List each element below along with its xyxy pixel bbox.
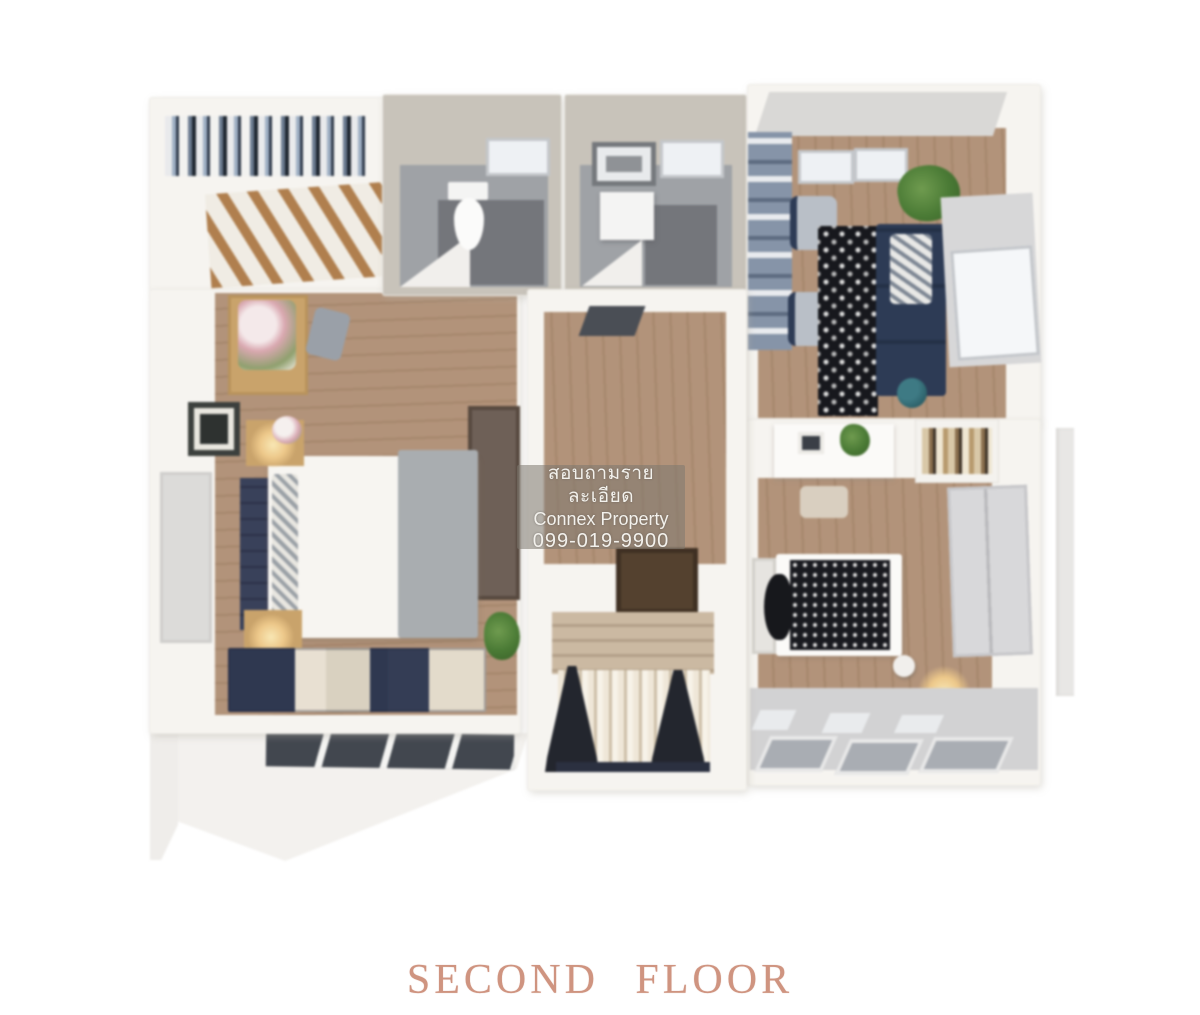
family-room-rug <box>818 226 878 416</box>
stair-bottom-rail <box>556 762 710 772</box>
bedroom2-desk <box>774 424 894 478</box>
floorplan-image: สอบถามรายละเอียด Connex Property 099-019… <box>0 0 1200 1015</box>
bedroom2-black-pillow <box>764 574 792 640</box>
floor-title: SECOND FLOOR <box>0 956 1200 1004</box>
right-outer-wall <box>1056 428 1074 696</box>
family-room-skylight-2 <box>854 148 908 182</box>
bathroom2-window <box>660 140 724 178</box>
family-room-skylight-1 <box>798 150 854 184</box>
sofa-pillow <box>890 234 932 304</box>
master-bed-pillows <box>272 474 298 620</box>
bedroom2-desk-plant <box>840 424 870 456</box>
family-room-window-right <box>950 245 1039 360</box>
vanity-mirror-cabinet <box>592 142 656 186</box>
hallway-doormat <box>579 306 646 336</box>
master-window-left <box>160 472 212 643</box>
bedroom2-closet-clothes <box>922 428 992 474</box>
roof-vent-3 <box>894 715 944 733</box>
watermark-line-thai: สอบถามรายละเอียด <box>517 462 685 508</box>
wall-picture-frame <box>188 402 240 456</box>
dressing-mirror-flowers <box>238 300 296 370</box>
bedroom2-floor-ball <box>893 655 915 677</box>
stair-treads <box>552 612 714 674</box>
master-plant <box>484 612 520 660</box>
nightstand-flowers <box>272 416 302 444</box>
bedroom2-duvet <box>790 560 890 650</box>
watermark-overlay: สอบถามรายละเอียด Connex Property 099-019… <box>517 465 685 549</box>
globe-decor <box>897 378 927 408</box>
master-bed-headboard <box>240 478 268 630</box>
study-desk-unit <box>748 132 792 350</box>
bedroom2-chair <box>800 486 848 518</box>
roof-skylight-3 <box>918 737 1014 773</box>
bathroom1-window <box>486 138 550 176</box>
closet-hanging-clothes <box>165 116 367 176</box>
bathroom2-shower-floor <box>645 205 717 285</box>
master-bed-gray-throw <box>398 450 478 638</box>
vanity-sink <box>600 192 654 240</box>
family-room-top-wall <box>755 92 1007 136</box>
watermark-line-brand: Connex Property <box>533 508 668 530</box>
balcony-railing <box>266 731 514 769</box>
master-foot-rug <box>228 648 486 712</box>
stairwell-opening <box>616 548 698 614</box>
bedroom2-wardrobe <box>947 485 1033 658</box>
watermark-line-phone: 099-019-9900 <box>533 530 670 553</box>
closet-slat-shelf <box>205 182 393 288</box>
bedroom2-desk-picture <box>798 432 824 454</box>
